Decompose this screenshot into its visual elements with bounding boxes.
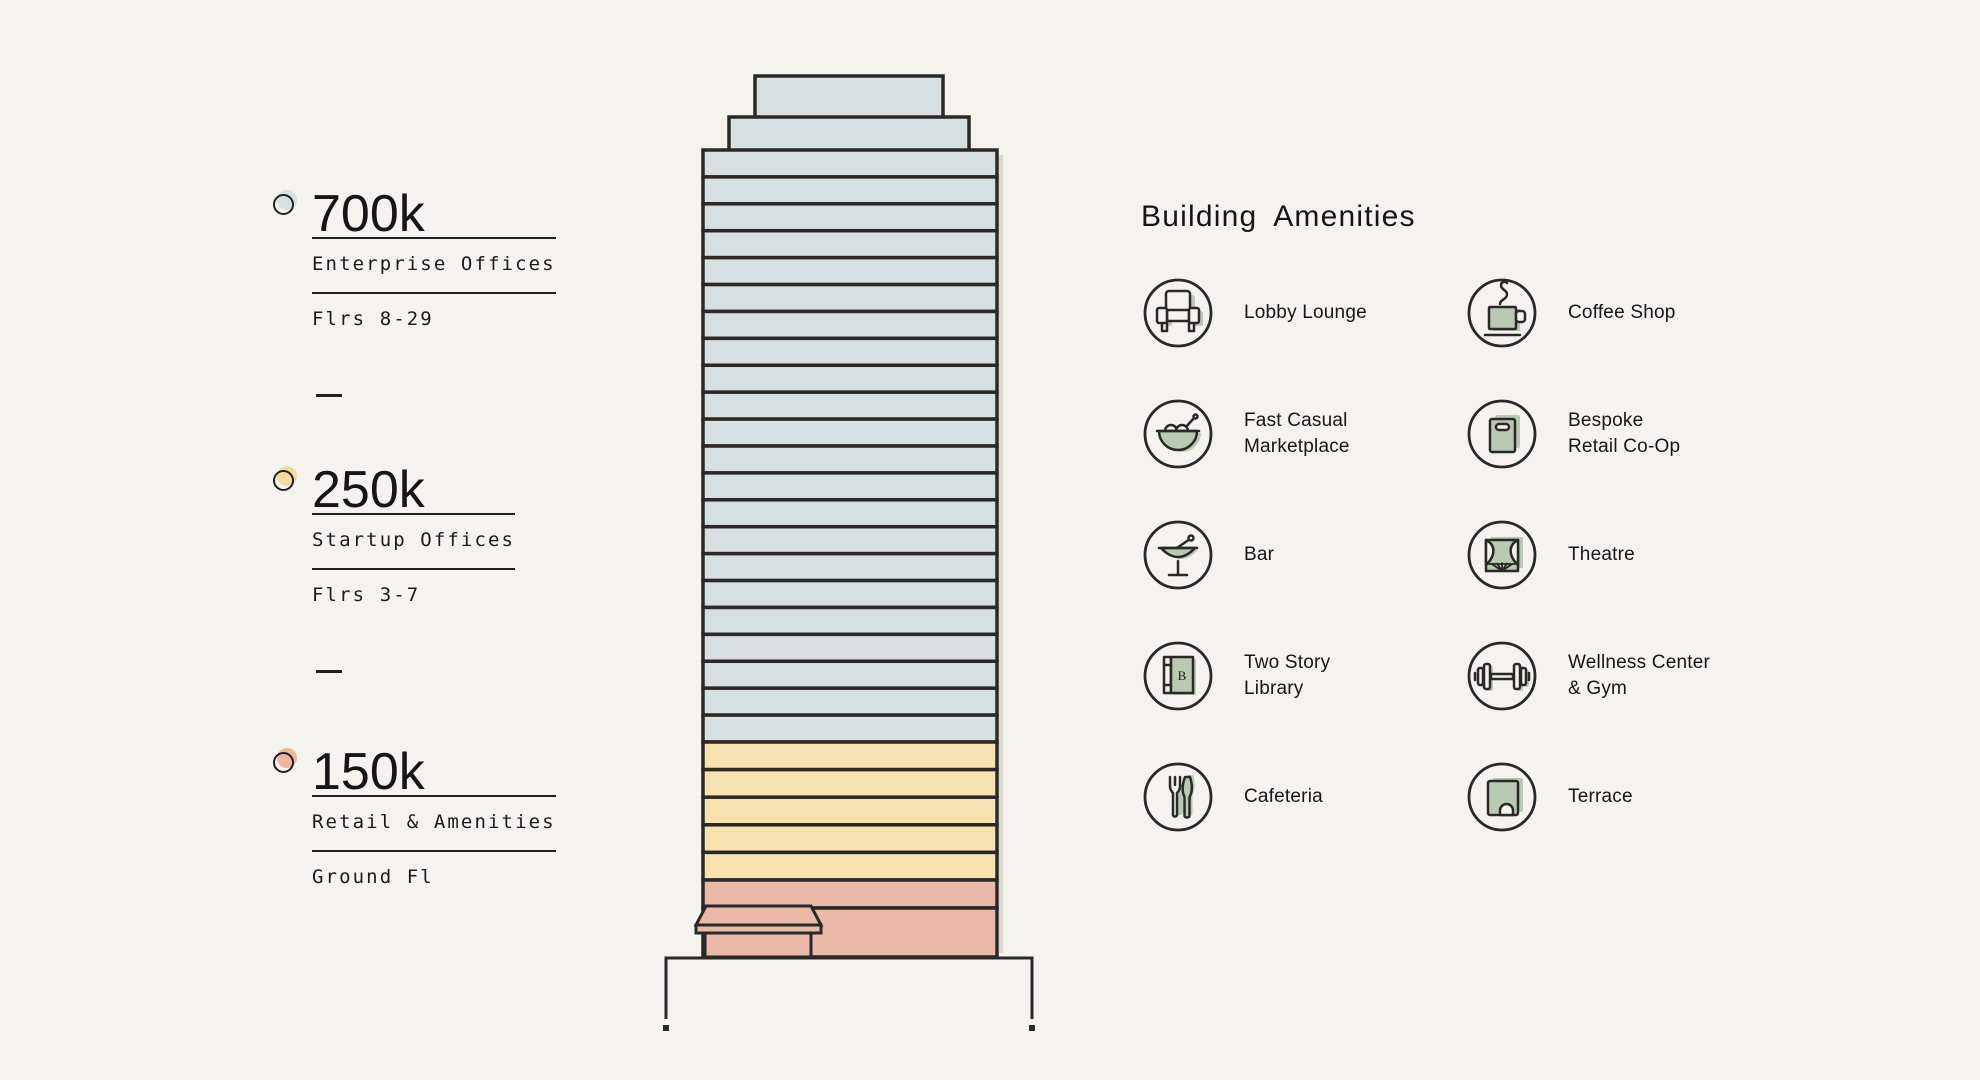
amenity-label: Fast Casual Marketplace [1244,408,1350,460]
building-floor-enterprise-offices [703,554,997,581]
fork-knife-icon [1142,761,1214,833]
book-icon: B [1142,640,1214,712]
theatre-stage-icon [1466,519,1538,591]
shopping-bag-icon [1466,398,1538,470]
amenity-item-lobby-lounge: Lobby Lounge [1142,277,1466,349]
amenity-label: Cafeteria [1244,784,1323,810]
amenities-title: Building Amenities [1141,200,1416,234]
building-floor-enterprise-offices [703,500,997,527]
amenity-item-two-story-library: B Two Story Library [1142,640,1466,712]
building-floor-startup-offices [703,742,997,770]
amenities-grid: Lobby Lounge Coffee Shop [1142,277,1790,833]
building-floor-enterprise-offices [703,581,997,608]
building-floor-enterprise-offices [703,419,997,446]
building-floor-enterprise-offices [703,231,997,258]
amenity-item-wellness-center-gym: Wellness Center & Gym [1466,640,1790,712]
building-floor-enterprise-offices [703,365,997,392]
amenity-item-bespoke-retail-coop: Bespoke Retail Co-Op [1466,398,1790,470]
amenity-item-coffee-shop: Coffee Shop [1466,277,1790,349]
building-floor-enterprise-offices [703,150,997,177]
building-floor-startup-offices [703,770,997,798]
building-floor-startup-offices [703,797,997,825]
amenity-item-cafeteria: Cafeteria [1142,761,1466,833]
amenity-item-terrace: Terrace [1466,761,1790,833]
amenity-label: Theatre [1568,542,1635,568]
amenity-item-theatre: Theatre [1466,519,1790,591]
ground-plinth [666,958,1032,1019]
building-floor-enterprise-offices [703,446,997,473]
amenity-label: Wellness Center & Gym [1568,650,1710,702]
terrace-icon [1466,761,1538,833]
amenity-item-bar: Bar [1142,519,1466,591]
building-floor-enterprise-offices [703,473,997,500]
building-floor-retail-mezzanine [703,880,997,908]
armchair-icon [1142,277,1214,349]
building-floors [703,150,997,908]
amenity-item-fast-casual-marketplace: Fast Casual Marketplace [1142,398,1466,470]
building-floor-startup-offices [703,852,997,880]
amenity-label: Lobby Lounge [1244,300,1367,326]
building-floor-enterprise-offices [703,634,997,661]
building-floor-enterprise-offices [703,311,997,338]
cocktail-glass-icon [1142,519,1214,591]
amenity-label: Bespoke Retail Co-Op [1568,408,1680,460]
amenity-label: Bar [1244,542,1274,568]
building-floor-enterprise-offices [703,661,997,688]
infographic-canvas: 700k Enterprise Offices Flrs 8-29 250k S… [0,0,1980,1080]
building-floor-enterprise-offices [703,715,997,742]
building-floor-enterprise-offices [703,338,997,365]
building-floor-enterprise-offices [703,527,997,554]
building-floor-enterprise-offices [703,392,997,419]
building-crown [729,76,969,154]
building-floor-enterprise-offices [703,204,997,231]
entrance-canopy [696,906,821,925]
building-crown-tier [755,76,943,121]
building-floor-startup-offices [703,825,997,853]
ground-marker-dot-left [663,1025,669,1031]
salad-bowl-icon [1142,398,1214,470]
building-floor-enterprise-offices [703,177,997,204]
dumbbell-icon [1466,640,1538,712]
building-floor-enterprise-offices [703,285,997,312]
entrance-box [705,933,811,957]
building-floor-enterprise-offices [703,607,997,634]
amenity-label: Terrace [1568,784,1633,810]
ground-marker-dot-right [1029,1025,1035,1031]
amenity-label: Coffee Shop [1568,300,1676,326]
building-floor-enterprise-offices [703,688,997,715]
svg-text:B: B [1178,668,1187,683]
coffee-cup-icon [1466,277,1538,349]
amenity-label: Two Story Library [1244,650,1330,702]
building-floor-enterprise-offices [703,258,997,285]
